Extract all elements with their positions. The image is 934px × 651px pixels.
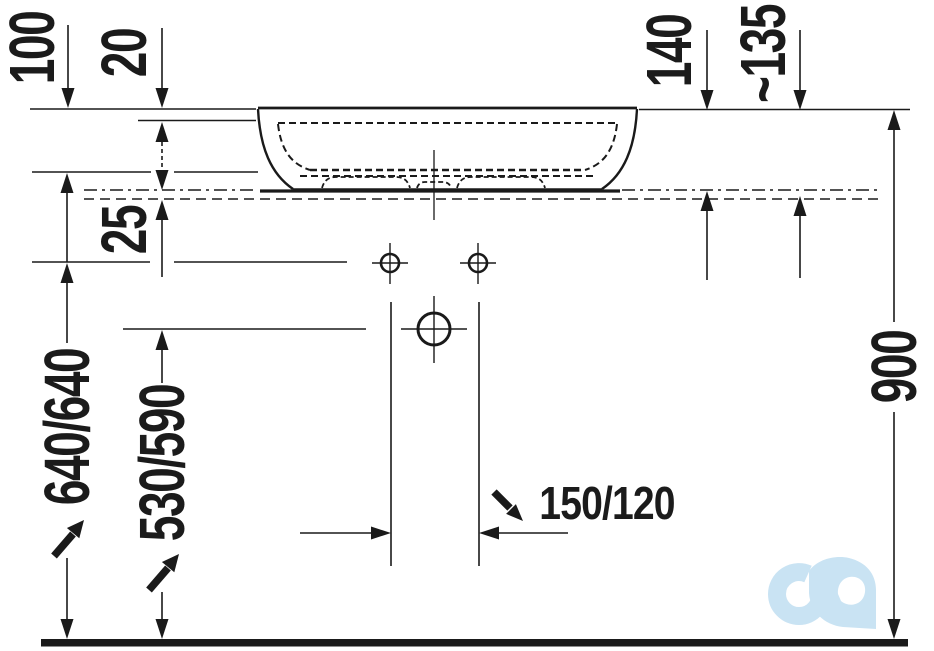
faucet-hole-right	[460, 243, 496, 284]
dim-label-150-120: 150/120	[539, 480, 674, 526]
drain-hole	[401, 296, 467, 363]
dim-label-20: 20	[92, 29, 156, 77]
dim-label-530-590: 530/590	[130, 385, 194, 541]
floor-line	[41, 639, 908, 647]
adjustable-arrow-icon	[54, 492, 523, 590]
dim-label-100: 100	[0, 12, 64, 85]
basin-outline	[258, 108, 637, 220]
dimension-lines	[61, 25, 901, 639]
dim-label-140: 140	[637, 15, 701, 88]
dim-label-640-640: 640/640	[35, 349, 99, 505]
technical-drawing-page: 100 20 140 ~135 25 640/640 530/590 900 1…	[0, 0, 934, 651]
dim-label-135: ~135	[731, 5, 795, 103]
cd-logo-icon	[777, 557, 876, 629]
basin-inner-contour	[278, 123, 617, 188]
dim-label-25: 25	[92, 206, 156, 254]
dim-label-900: 900	[862, 331, 926, 404]
faucet-hole-left	[372, 243, 408, 284]
